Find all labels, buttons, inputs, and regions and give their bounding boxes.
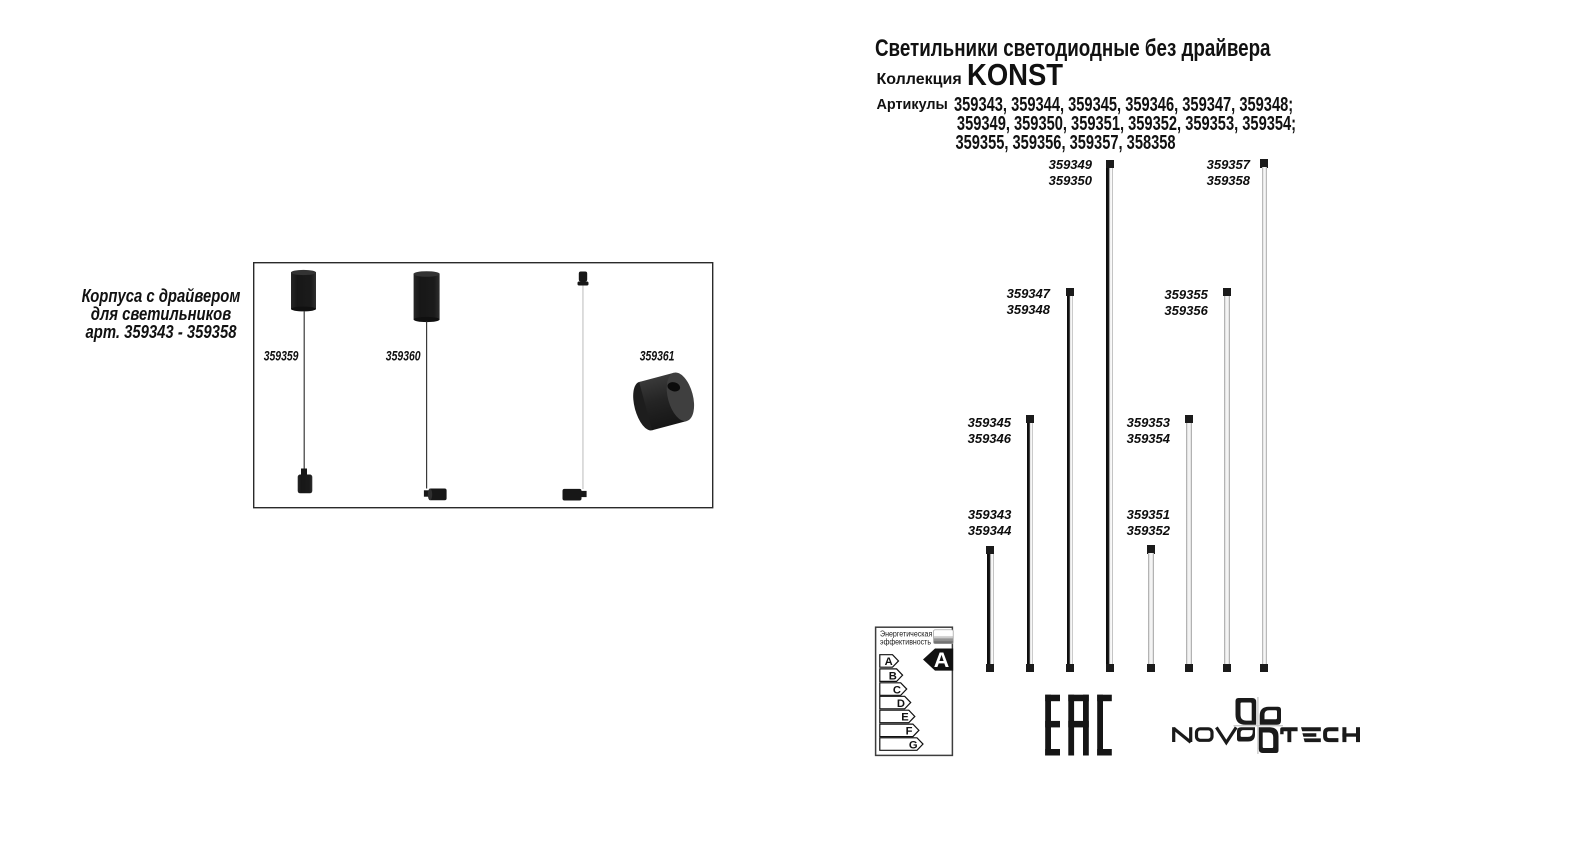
svg-text:B: B — [889, 670, 897, 682]
svg-text:эффективность: эффективность — [880, 637, 931, 646]
svg-text:E: E — [901, 712, 909, 724]
svg-text:A: A — [885, 656, 893, 668]
svg-text:359360: 359360 — [386, 349, 421, 364]
svg-text:C: C — [893, 684, 901, 696]
svg-text:359359: 359359 — [264, 349, 299, 364]
svg-text:A: A — [934, 648, 950, 672]
svg-text:D: D — [897, 698, 905, 710]
svg-text:F: F — [906, 726, 913, 738]
svg-text:359361: 359361 — [640, 349, 675, 364]
svg-text:G: G — [909, 739, 918, 751]
